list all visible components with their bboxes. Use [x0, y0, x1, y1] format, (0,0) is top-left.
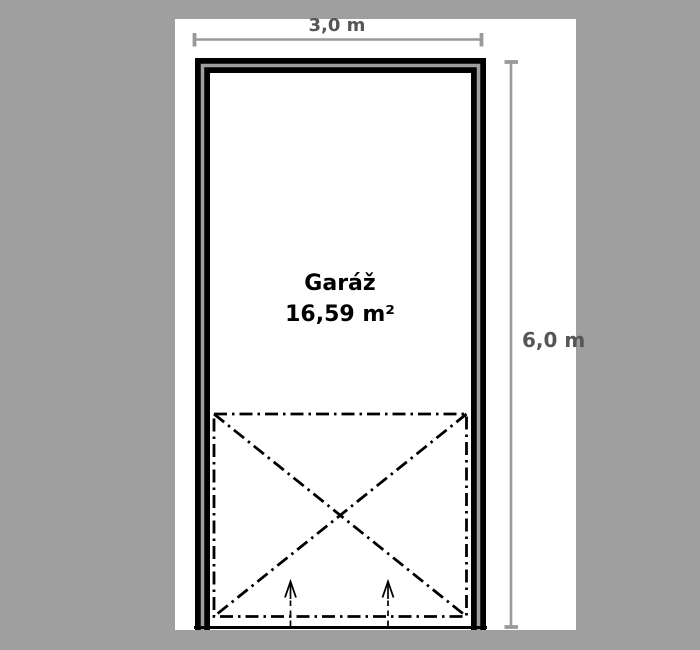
height-dimension-line	[505, 62, 519, 627]
room-name-label: Garáž	[190, 271, 490, 297]
width-dimension-label: 3,0 m	[237, 16, 437, 35]
room-area-label: 16,59 m²	[190, 302, 490, 328]
floor-plan-canvas: 3,0 m 6,0 m Garáž 16,59 m²	[0, 0, 700, 650]
up-arrow-icon	[285, 582, 296, 627]
garage-door-swing	[214, 414, 467, 617]
opening-direction-arrows	[285, 582, 394, 627]
up-arrow-icon	[383, 582, 394, 627]
height-dimension-label: 6,0 m	[522, 330, 585, 351]
wall-outline	[203, 66, 479, 631]
